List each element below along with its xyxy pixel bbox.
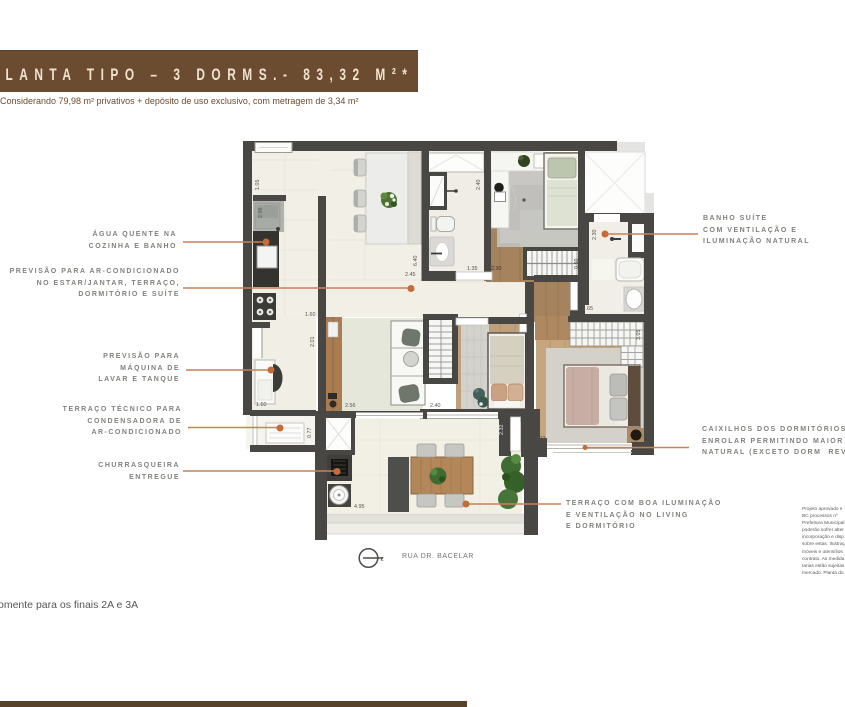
svg-text:3.05: 3.05 [636,330,642,341]
svg-text:1.60: 1.60 [305,312,316,318]
svg-text:4.95: 4.95 [354,504,365,510]
svg-text:2.01: 2.01 [310,337,316,348]
svg-text:6.40: 6.40 [413,256,419,267]
svg-text:2.40: 2.40 [430,403,441,409]
svg-text:0.60: 0.60 [574,259,580,270]
svg-text:2.40: 2.40 [476,180,482,191]
svg-text:1.60: 1.60 [256,402,267,408]
svg-text:2.72: 2.72 [535,436,546,442]
svg-text:1.05: 1.05 [255,180,261,191]
svg-text:2.30: 2.30 [592,230,598,241]
svg-text:z: z [381,556,385,563]
svg-text:2.96: 2.96 [258,208,264,219]
svg-text:2.45: 2.45 [405,272,416,278]
svg-text:1.35: 1.35 [467,266,478,272]
svg-text:2.56: 2.56 [345,403,356,409]
svg-text:2.32: 2.32 [499,425,505,436]
svg-text:1.65: 1.65 [583,306,594,312]
svg-text:0.77: 0.77 [307,428,313,439]
svg-text:2.30: 2.30 [491,266,502,272]
